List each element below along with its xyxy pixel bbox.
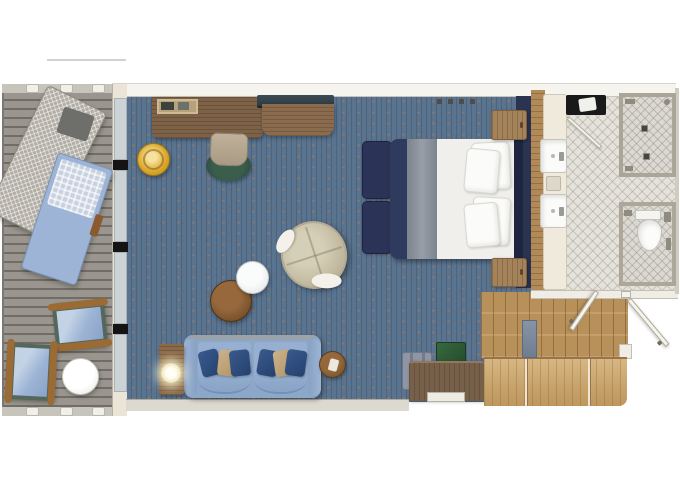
door-handle xyxy=(569,319,575,325)
entry-door xyxy=(627,298,669,347)
door-handle xyxy=(657,340,663,346)
floor-plan-canvas xyxy=(0,0,680,491)
doors-layer xyxy=(0,0,680,491)
bathroom-door xyxy=(569,290,599,331)
